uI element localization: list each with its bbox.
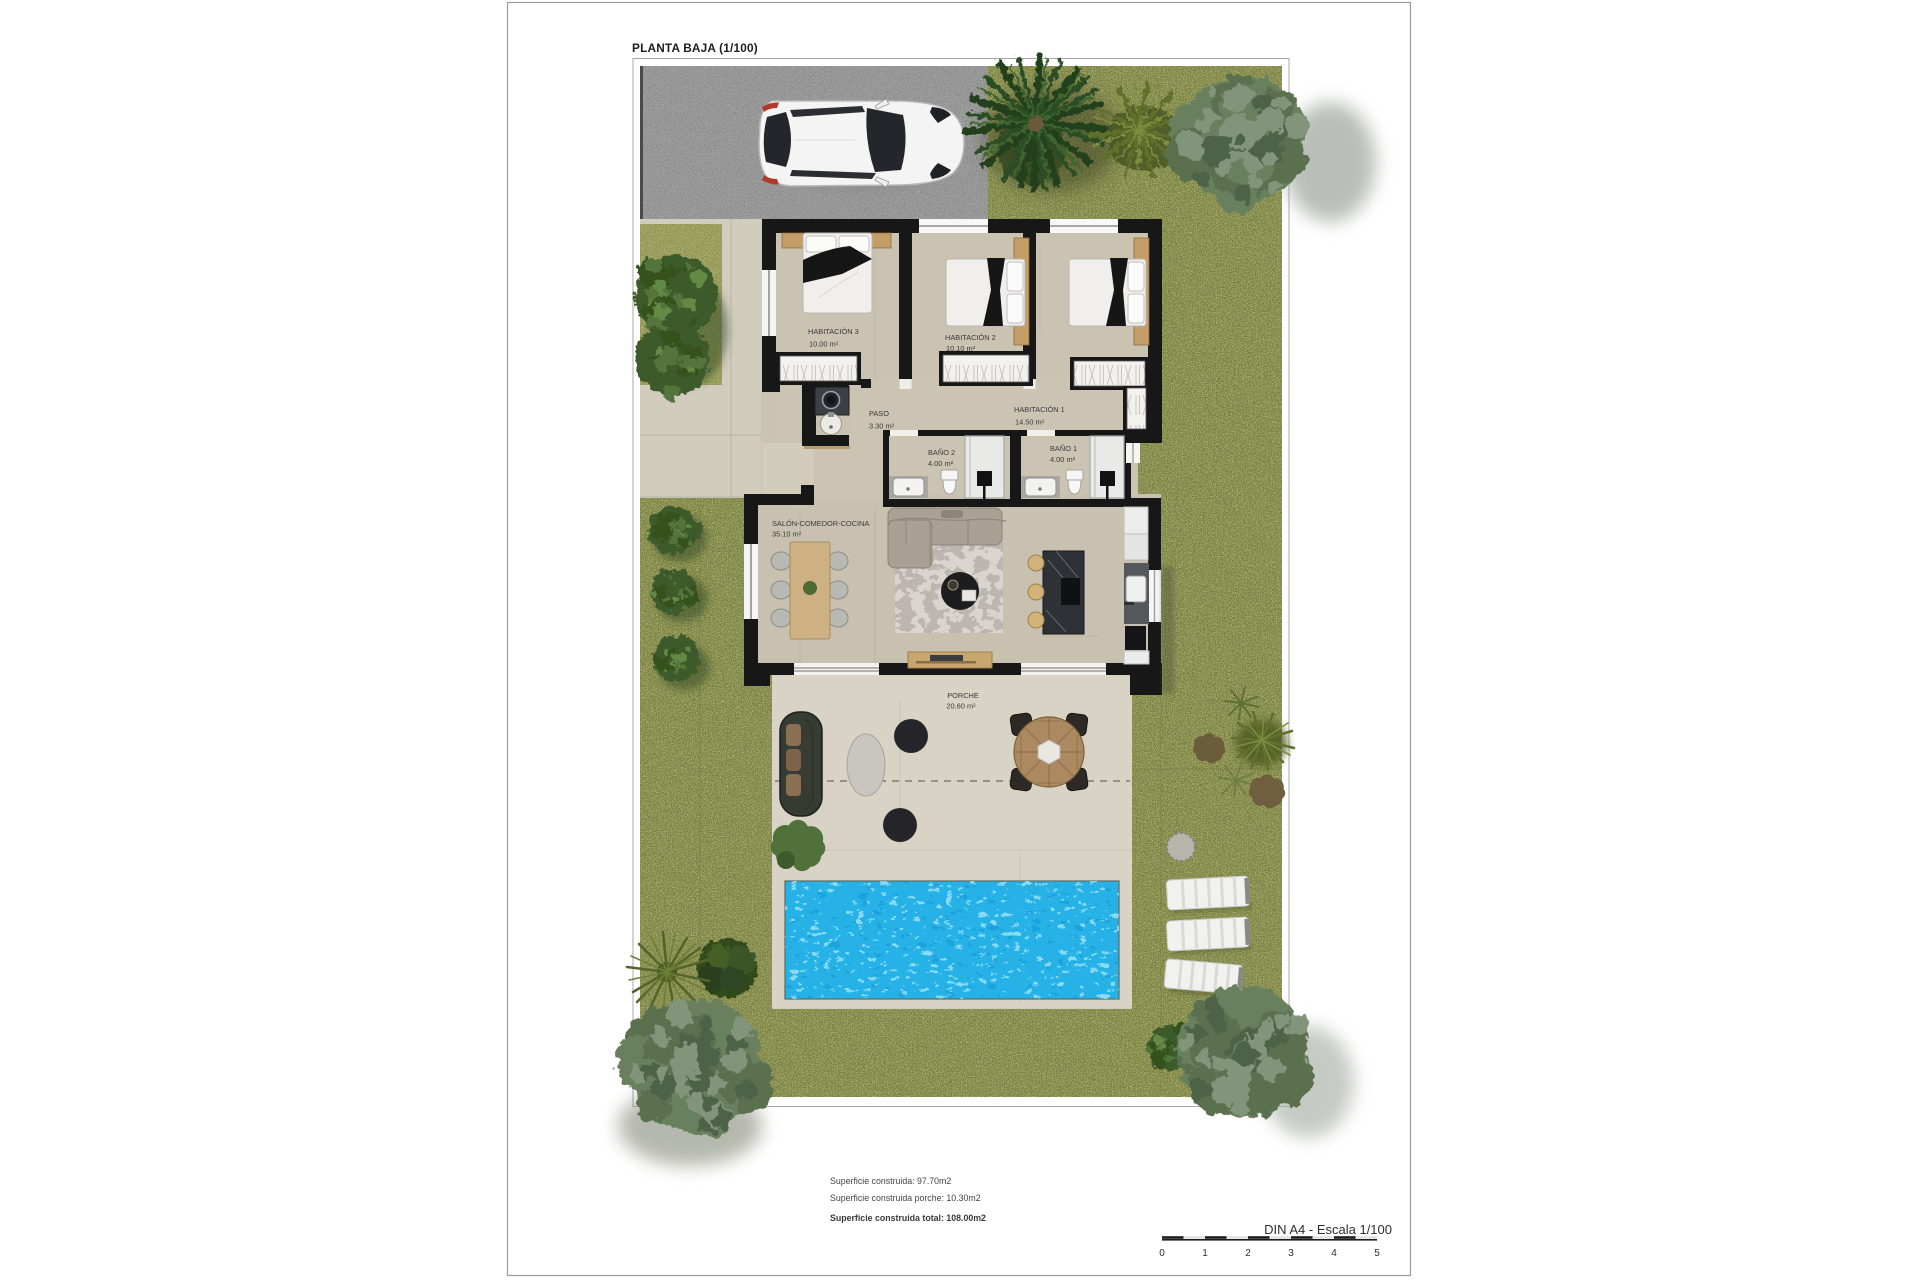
svg-text:DIN A4 - Escala 1/100: DIN A4 - Escala 1/100: [1264, 1222, 1392, 1237]
svg-text:10.10 m²: 10.10 m²: [946, 344, 976, 353]
svg-text:Superficie construida: 97.70m2: Superficie construida: 97.70m2: [830, 1176, 951, 1186]
svg-text:3.30 m²: 3.30 m²: [869, 422, 895, 431]
svg-text:BAÑO 2: BAÑO 2: [928, 448, 955, 457]
svg-text:5: 5: [1374, 1248, 1380, 1259]
svg-text:HABITACIÓN 1: HABITACIÓN 1: [1014, 405, 1065, 414]
svg-text:35.10 m²: 35.10 m²: [772, 530, 802, 539]
svg-text:Superficie construida porche:: Superficie construida porche: 10.30m2: [830, 1193, 981, 1203]
svg-text:SALÓN-COMEDOR-COCINA: SALÓN-COMEDOR-COCINA: [772, 519, 869, 528]
svg-text:10.00 m²: 10.00 m²: [809, 340, 839, 349]
svg-text:3: 3: [1288, 1248, 1294, 1259]
svg-text:2: 2: [1245, 1248, 1251, 1259]
svg-text:14.50 m²: 14.50 m²: [1015, 418, 1045, 427]
svg-text:BAÑO 1: BAÑO 1: [1050, 444, 1077, 453]
svg-text:4: 4: [1331, 1248, 1337, 1259]
svg-text:PLANTA BAJA (1/100): PLANTA BAJA (1/100): [632, 41, 758, 55]
svg-text:PASO: PASO: [869, 409, 889, 418]
svg-text:4.00 m²: 4.00 m²: [928, 459, 954, 468]
svg-text:0: 0: [1159, 1248, 1165, 1259]
svg-text:PORCHE: PORCHE: [947, 691, 979, 700]
svg-text:1: 1: [1202, 1248, 1208, 1259]
svg-text:HABITACIÓN 2: HABITACIÓN 2: [945, 333, 996, 342]
svg-text:HABITACIÓN 3: HABITACIÓN 3: [808, 327, 859, 336]
svg-text:20.60 m²: 20.60 m²: [946, 702, 976, 711]
svg-text:4.00 m²: 4.00 m²: [1050, 455, 1076, 464]
svg-text:Superficie construida total: 1: Superficie construida total: 108.00m2: [830, 1213, 986, 1223]
